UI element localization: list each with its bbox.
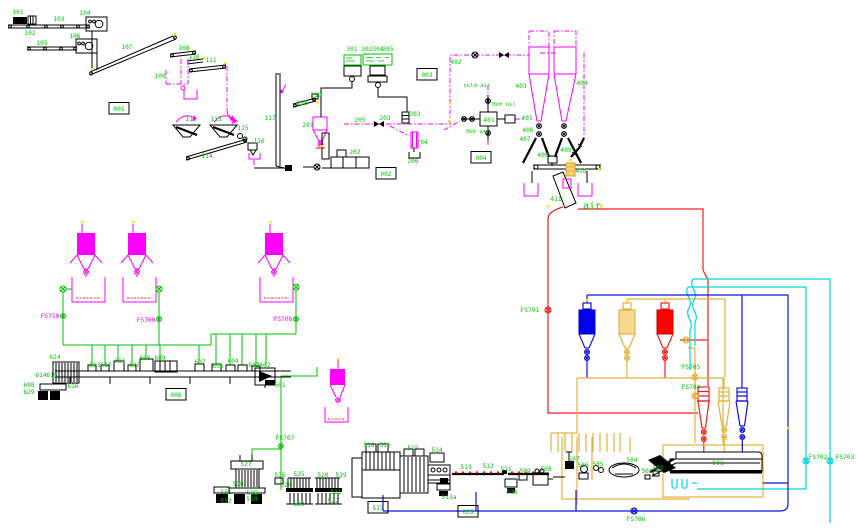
feeder-303 <box>402 112 409 123</box>
process-flow-diagram: 001002003004005006517 101102103104105106… <box>0 0 856 529</box>
equipment-label-205: 205 <box>354 117 365 124</box>
hopper-201 <box>313 117 327 130</box>
equipment-label-202: 202 <box>349 149 360 156</box>
blue-cyclone <box>737 388 747 401</box>
equipment-label-201: 201 <box>302 122 313 129</box>
equipment-label-629: 629 <box>23 389 34 396</box>
equipment-label-522: 522 <box>327 498 338 505</box>
section-label-004: 004 <box>475 155 486 162</box>
equipment-label-113: 113 <box>210 116 221 123</box>
equipment-label-204: 204 <box>416 139 427 146</box>
equipment-label-405: 405 <box>521 115 532 122</box>
equipment-label-523: 523 <box>293 501 304 508</box>
mixer-roll-section <box>214 455 342 504</box>
dosing-section <box>321 54 409 123</box>
incline-conveyor-114 <box>186 139 247 160</box>
equipment-label-301: 301 <box>346 46 357 53</box>
equipment-label-504: 504 <box>626 457 637 464</box>
equipment-label-102: 102 <box>24 30 35 37</box>
equipment-label-518: 518 <box>363 442 374 449</box>
dust-takeoff-109 <box>166 59 238 124</box>
equipment-label-118: 118 <box>296 100 307 107</box>
equipment-label-531: 531 <box>220 489 231 496</box>
equipment-label-508: 508 <box>540 466 551 473</box>
equipment-label-529: 529 <box>246 496 257 503</box>
equipment-label-501: 501 <box>712 460 723 467</box>
feeder-101 <box>13 17 27 24</box>
equipment-label-601: 601 <box>274 382 285 389</box>
feed-bins-section <box>60 224 317 490</box>
cyclone-403 <box>529 47 549 74</box>
equipment-label-519: 519 <box>335 472 346 479</box>
equipment-label-110: 110 <box>188 54 199 61</box>
equipment-label-604: 604 <box>227 358 238 365</box>
day-bin-2 <box>128 233 146 255</box>
equipment-label-206: 206 <box>407 158 418 165</box>
equipment-label-616: 616 <box>67 383 78 390</box>
equipment-label-108: 108 <box>178 45 189 52</box>
equipment-label-515: 515 <box>407 445 418 452</box>
equipment-label-521: 521 <box>330 489 341 496</box>
equipment-label-303: 303 <box>409 111 420 118</box>
equipment-label-602: 602 <box>259 362 270 369</box>
scale-302-304-305 <box>363 54 392 65</box>
equipment-label-101: 101 <box>12 9 23 16</box>
label-fs703: FS703 <box>836 454 855 461</box>
equipment-label-106: 106 <box>69 33 80 40</box>
equipment-label-203: 203 <box>379 115 390 122</box>
classifier-504 <box>609 463 639 477</box>
day-bin-1 <box>77 233 95 255</box>
label-fs701: FS701 <box>521 307 540 314</box>
stand-510 <box>505 479 517 487</box>
equipment-label-530: 530 <box>232 481 243 488</box>
equipment-label-409: 409 <box>560 147 571 154</box>
equipment-label-506: 506 <box>577 462 588 469</box>
section-label-003: 003 <box>421 72 432 79</box>
day-bin-3 <box>265 233 283 255</box>
equipment-label-516: 516 <box>379 442 390 449</box>
strand-line <box>352 444 565 498</box>
scale-301 <box>344 55 361 65</box>
cyclone-404 <box>554 47 576 74</box>
equipment-label-503: 503 <box>641 468 652 475</box>
label-fs705: FS705 <box>682 364 701 371</box>
equipment-label-507: 507 <box>568 456 579 463</box>
equipment-label-408: 408 <box>537 152 548 159</box>
equipment-label-305: 305 <box>382 46 393 53</box>
equipment-label-111: 111 <box>205 57 216 64</box>
equipment-label-532: 532 <box>220 498 231 505</box>
magnet-separator-104 <box>86 17 107 31</box>
vent-hopper <box>330 369 345 385</box>
label-cold-air: cold air <box>464 83 492 89</box>
label-fs708: FS708 <box>274 316 293 323</box>
section-label-006: 006 <box>170 392 181 399</box>
label-fs710: FS710 <box>41 313 60 320</box>
equipment-label-403: 403 <box>515 83 526 90</box>
section-label-002: 002 <box>380 171 391 178</box>
equipment-label-608: 608 <box>23 382 34 389</box>
equipment-label-614: 614 <box>35 372 46 379</box>
equipment-label-527: 527 <box>240 461 251 468</box>
equipment-label-302: 302 <box>361 46 372 53</box>
equipment-label-103: 103 <box>53 16 64 23</box>
equipment-label-526: 526 <box>274 472 285 479</box>
additive-hoppers <box>579 295 673 378</box>
tan-cyclone <box>719 388 729 401</box>
equipment-label-607: 607 <box>194 359 205 366</box>
equipment-label-511: 511 <box>500 466 511 473</box>
equipment-label-605: 605 <box>212 363 223 370</box>
hopper-red <box>657 310 673 334</box>
equipment-label-509: 509 <box>519 468 530 475</box>
hopper-tan <box>619 310 635 334</box>
equipment-label-402: 402 <box>450 59 461 66</box>
equipment-label-510: 510 <box>506 489 517 496</box>
equipment-label-115: 115 <box>237 125 248 132</box>
equipment-label-512: 512 <box>482 463 493 470</box>
equipment-label-411: 411 <box>550 196 561 203</box>
equipment-label-525: 525 <box>293 471 304 478</box>
equipment-label-116: 116 <box>253 138 264 145</box>
equipment-label-513a: 513a <box>442 494 457 501</box>
equipment-label-514: 514 <box>431 447 442 454</box>
equipment-label-107: 107 <box>121 44 132 51</box>
equipment-labels-layer: 1011021031041051061071081091101111121131… <box>12 9 854 523</box>
equipment-label-104: 104 <box>79 10 90 17</box>
label-hot-oil: Hot oil <box>492 102 516 108</box>
cyclone-section <box>523 31 601 208</box>
equipment-label-615: 615 <box>46 372 57 379</box>
cad-drawing-canvas: 001002003004005006517 101102103104105106… <box>0 0 856 529</box>
equipment-label-407: 407 <box>519 136 530 143</box>
unit-115 <box>238 134 243 139</box>
equipment-label-112: 112 <box>185 116 196 123</box>
equipment-label-513: 513 <box>460 464 471 471</box>
equipment-label-524: 524 <box>280 482 291 489</box>
incline-conveyor-107 <box>90 36 176 75</box>
label-fs709: FS709 <box>137 317 156 324</box>
pneumatic-conveying-lines <box>344 52 584 158</box>
section-label-005: 005 <box>462 509 473 516</box>
section-label-001: 001 <box>113 106 124 113</box>
equipment-label-119: 119 <box>310 92 321 99</box>
section-label-517: 517 <box>372 505 383 512</box>
equipment-label-609: 609 <box>154 355 165 362</box>
equipment-label-406: 406 <box>522 127 533 134</box>
equipment-label-401: 401 <box>483 117 494 124</box>
equipment-label-109: 109 <box>154 73 165 80</box>
label-hot-air: Hot air <box>466 129 490 135</box>
equipment-label-105: 105 <box>36 40 47 47</box>
equipment-label-114: 114 <box>201 153 212 160</box>
equipment-label-624: 624 <box>49 354 60 361</box>
equipment-label-611: 611 <box>114 358 125 365</box>
label-fs704: FS704 <box>682 384 701 391</box>
equipment-label-623: 623 <box>89 362 100 369</box>
equipment-label-502: 502 <box>652 465 663 472</box>
equipment-label-606: 606 <box>139 355 150 362</box>
equipment-label-618: 618 <box>129 362 140 369</box>
rotary-valve-410 <box>566 163 575 176</box>
equipment-label-617: 617 <box>100 362 111 369</box>
equipment-label-505: 505 <box>592 461 603 468</box>
hopper-blue <box>579 310 595 334</box>
magnet-separator-106 <box>76 39 97 53</box>
label-air: air <box>583 201 601 212</box>
equipment-label-404: 404 <box>576 80 587 87</box>
cooling-water-lines <box>672 279 833 523</box>
equipment-label-410: 410 <box>575 168 586 175</box>
label-fs706: FS706 <box>627 516 646 523</box>
pelletizer-501 <box>676 452 762 459</box>
stand-513a <box>440 478 448 483</box>
extruder-line <box>38 359 348 422</box>
label-fs707: FS707 <box>276 435 295 442</box>
label-fs702: FS702 <box>809 454 828 461</box>
mill-202 <box>322 133 329 159</box>
equipment-label-520: 520 <box>317 472 328 479</box>
equipment-label-117: 117 <box>264 115 275 122</box>
equipment-label-603: 603 <box>248 362 259 369</box>
